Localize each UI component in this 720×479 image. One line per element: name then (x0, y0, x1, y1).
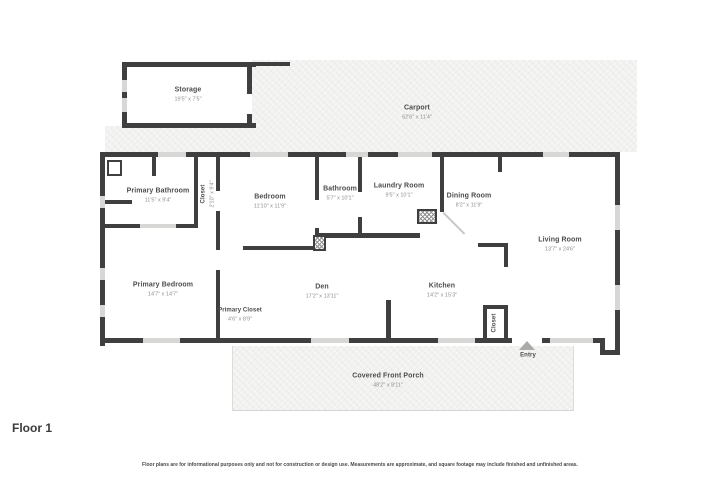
window-segment (100, 305, 105, 317)
wall-segment (440, 157, 444, 212)
window-segment (122, 80, 127, 92)
floor-plan: Storage 19'5" x 7'5" Carport 62'6" x 11'… (0, 0, 720, 479)
carport-area (252, 60, 637, 152)
wall-segment (105, 224, 140, 228)
wall-segment (315, 233, 420, 238)
window-segment (550, 338, 593, 343)
wall-segment (194, 157, 198, 228)
window-segment (100, 268, 105, 280)
room-label-primary-bathroom: Primary Bathroom 11'5" x 9'4" (127, 188, 190, 205)
room-label-dining-room: Dining Room 8'2" x 11'9" (447, 193, 492, 210)
wall-segment (122, 62, 256, 67)
wall-segment (216, 157, 220, 191)
room-label-primary-closet: Primary Closet 4'6" x 8'9" (217, 307, 263, 322)
window-segment (615, 285, 620, 310)
window-segment (143, 338, 180, 343)
room-label-laundry-room: Laundry Room 9'5" x 10'1" (374, 183, 425, 200)
carport-area-left (105, 126, 252, 152)
window-segment (398, 152, 432, 157)
room-label-den: Den 17'2" x 13'11" (306, 284, 339, 301)
wall-segment (358, 157, 362, 192)
room-label-closet-hall: Closet 2'10" x 9'4" (200, 180, 215, 207)
appliance-hatch (313, 235, 326, 251)
wall-segment (216, 211, 220, 228)
appliance-hatch (417, 209, 437, 224)
wall-segment (483, 305, 508, 309)
window-segment (438, 338, 475, 343)
wall-segment (122, 123, 256, 128)
disclaimer-text: Floor plans are for informational purpos… (0, 462, 720, 468)
room-label-bedroom: Bedroom 11'10" x 11'9" (254, 194, 286, 211)
room-label-living-room: Living Room 13'7" x 24'6" (538, 237, 582, 254)
room-label-entry-closet: Closet (491, 314, 499, 333)
wall-segment (315, 157, 319, 200)
window-segment (122, 98, 127, 112)
wall-segment (176, 224, 198, 228)
wall-segment (386, 300, 391, 341)
wall-segment (247, 62, 252, 94)
wall-segment (498, 157, 502, 172)
room-label-storage: Storage 19'5" x 7'5" (174, 87, 201, 104)
window-segment (158, 152, 186, 157)
room-label-bathroom: Bathroom 5'7" x 10'1" (323, 186, 357, 203)
room-label-covered-front-porch: Covered Front Porch 48'2" x 8'11" (352, 373, 424, 390)
window-segment (311, 338, 349, 343)
wall-segment (216, 270, 220, 338)
wall-segment (247, 114, 252, 128)
wall-segment (504, 305, 508, 341)
entry-arrow-icon (519, 341, 535, 350)
window-segment (140, 224, 176, 228)
window-segment (100, 196, 105, 208)
room-label-primary-bedroom: Primary Bedroom 14'7" x 14'7" (133, 282, 193, 299)
window-segment (615, 205, 620, 230)
wall-segment (152, 157, 156, 176)
window-segment (250, 152, 288, 157)
wall-segment (243, 246, 322, 250)
room-label-entry: Entry (520, 352, 536, 360)
window-segment (346, 152, 368, 157)
window-segment (543, 152, 569, 157)
floor-title: Floor 1 (12, 421, 52, 435)
wall-segment (615, 152, 620, 355)
wall-segment (122, 62, 127, 128)
room-label-kitchen: Kitchen 14'2" x 15'3" (427, 283, 457, 300)
door-swing (443, 212, 466, 235)
wall-segment (216, 228, 220, 250)
toilet-fixture (107, 160, 122, 176)
wall-segment (483, 305, 487, 341)
wall-segment (252, 62, 290, 66)
wall-segment (504, 243, 508, 267)
room-label-carport: Carport 62'6" x 11'4" (402, 105, 432, 122)
